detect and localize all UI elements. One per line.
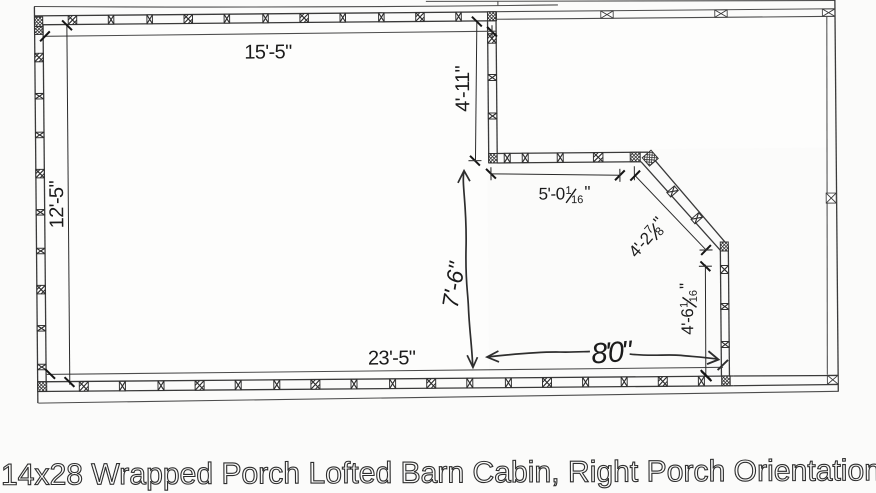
svg-text:8'0": 8'0": [590, 335, 635, 370]
svg-text:4'-6: 4'-6: [678, 309, 697, 335]
svg-text:16: 16: [688, 290, 700, 302]
svg-text:15'-5": 15'-5": [244, 41, 292, 63]
svg-text:": ": [584, 183, 590, 202]
svg-text:16: 16: [571, 194, 583, 206]
svg-text:4'-11": 4'-11": [452, 65, 474, 112]
svg-text:23'-5": 23'-5": [368, 347, 416, 369]
svg-text:14x28 Wrapped Porch Lofted Bar: 14x28 Wrapped Porch Lofted Barn Cabin, R…: [1, 454, 876, 492]
svg-text:12'-5": 12'-5": [46, 180, 68, 228]
svg-text:5'-0: 5'-0: [538, 184, 564, 203]
svg-text:": ": [676, 283, 695, 289]
